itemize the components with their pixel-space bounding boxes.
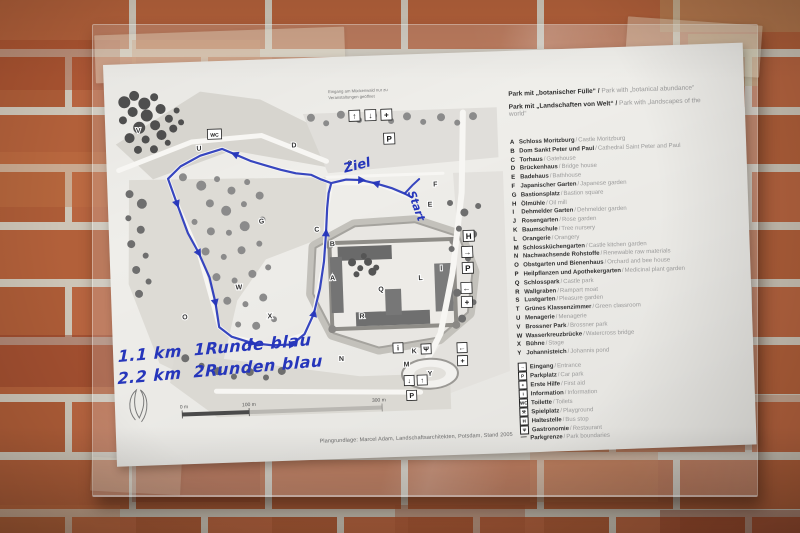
svg-text:X: X <box>267 313 272 320</box>
map-top-note: Eingang am Mückenwald nur zu Veranstaltu… <box>328 87 389 100</box>
map-exit-down-icon: ↓ <box>368 111 372 120</box>
icon-legend-list: →Eingang/Entrance PParkplatz/Car park +E… <box>518 356 721 444</box>
scale-end-label: 300 m <box>372 397 386 403</box>
svg-text:N: N <box>339 356 344 363</box>
legend-symbol-icon: i <box>519 389 528 398</box>
map-restaurant-icon: Ψ <box>423 346 429 353</box>
map-wc-icon: WC <box>210 132 219 138</box>
svg-text:Veranstaltungen geöffnet: Veranstaltungen geöffnet <box>328 94 375 101</box>
svg-text:B: B <box>330 241 335 248</box>
svg-text:U: U <box>196 146 201 153</box>
legend-symbol-icon: + <box>518 380 527 389</box>
svg-text:E: E <box>428 202 433 209</box>
map-parking-icon-east: P <box>465 264 471 273</box>
svg-text:I: I <box>440 265 442 272</box>
photo-of-park-map-on-brick-wall: ↑ ↓ + WC P H → P ← <box>0 0 800 533</box>
svg-text:M: M <box>404 361 410 368</box>
svg-text:C: C <box>314 227 319 234</box>
legend-header-line-1: Park mit „botanischer Fülle“ / Park with… <box>508 84 708 98</box>
legend-symbol-icon: Ψ <box>520 425 529 434</box>
svg-text:Y: Y <box>428 371 433 378</box>
scale-start-label: 0 m <box>180 404 189 410</box>
map-first-aid-south-icon: + <box>460 358 464 365</box>
legend-symbol-icon: → <box>518 362 527 371</box>
scale-mid-label: 100 m <box>242 402 256 408</box>
legend-symbol-icon: H <box>520 416 529 425</box>
svg-text:K: K <box>412 348 417 355</box>
legend-item-list: ASchloss Moritzburg/Castle Moritzburg BD… <box>510 132 718 359</box>
map-entrance-left-icon: ← <box>462 284 470 293</box>
map-entrance-south-up-icon: ↑ <box>420 377 424 384</box>
map-exit-south-icon: ↓ <box>407 378 411 385</box>
map-first-aid-east-icon: + <box>465 298 470 307</box>
legend-panel: Park mit „botanischer Fülle“ / Park with… <box>508 84 709 123</box>
map-parking-icon-south: P <box>409 393 414 400</box>
svg-text:A: A <box>330 275 335 282</box>
map-information-icon: i <box>397 345 399 352</box>
map-entrance-south-icon: ← <box>458 345 465 352</box>
map-first-aid-icon: + <box>384 111 389 120</box>
map-entrance-east-icon: → <box>463 248 471 257</box>
svg-text:F: F <box>433 181 438 188</box>
legend-symbol-icon: ⚒ <box>519 407 528 416</box>
map-entrance-up-icon: ↑ <box>352 112 356 121</box>
legend-symbol-icon: — <box>520 434 527 441</box>
svg-text:W: W <box>235 284 242 291</box>
svg-text:V: V <box>136 128 141 135</box>
svg-text:G: G <box>259 218 265 225</box>
north-leaf-symbol <box>129 390 147 423</box>
paper-map-sheet: ↑ ↓ + WC P H → P ← <box>103 43 757 467</box>
map-parking-icon-north: P <box>386 134 392 143</box>
legend-header: Park mit „botanischer Fülle“ / Park with… <box>508 84 709 118</box>
svg-text:R: R <box>359 313 364 320</box>
svg-text:D: D <box>291 142 296 149</box>
legend-header-line-2: Park mit „Landschaften von Welt“ / Park … <box>509 96 709 118</box>
legend-symbol-icon: WC <box>519 398 528 407</box>
plastic-sleeve: ↑ ↓ + WC P H → P ← <box>92 24 758 497</box>
svg-text:Q: Q <box>378 286 384 293</box>
legend-symbol-icon: P <box>518 371 527 380</box>
map-bus-stop-icon: H <box>466 232 472 241</box>
svg-text:O: O <box>182 314 188 321</box>
